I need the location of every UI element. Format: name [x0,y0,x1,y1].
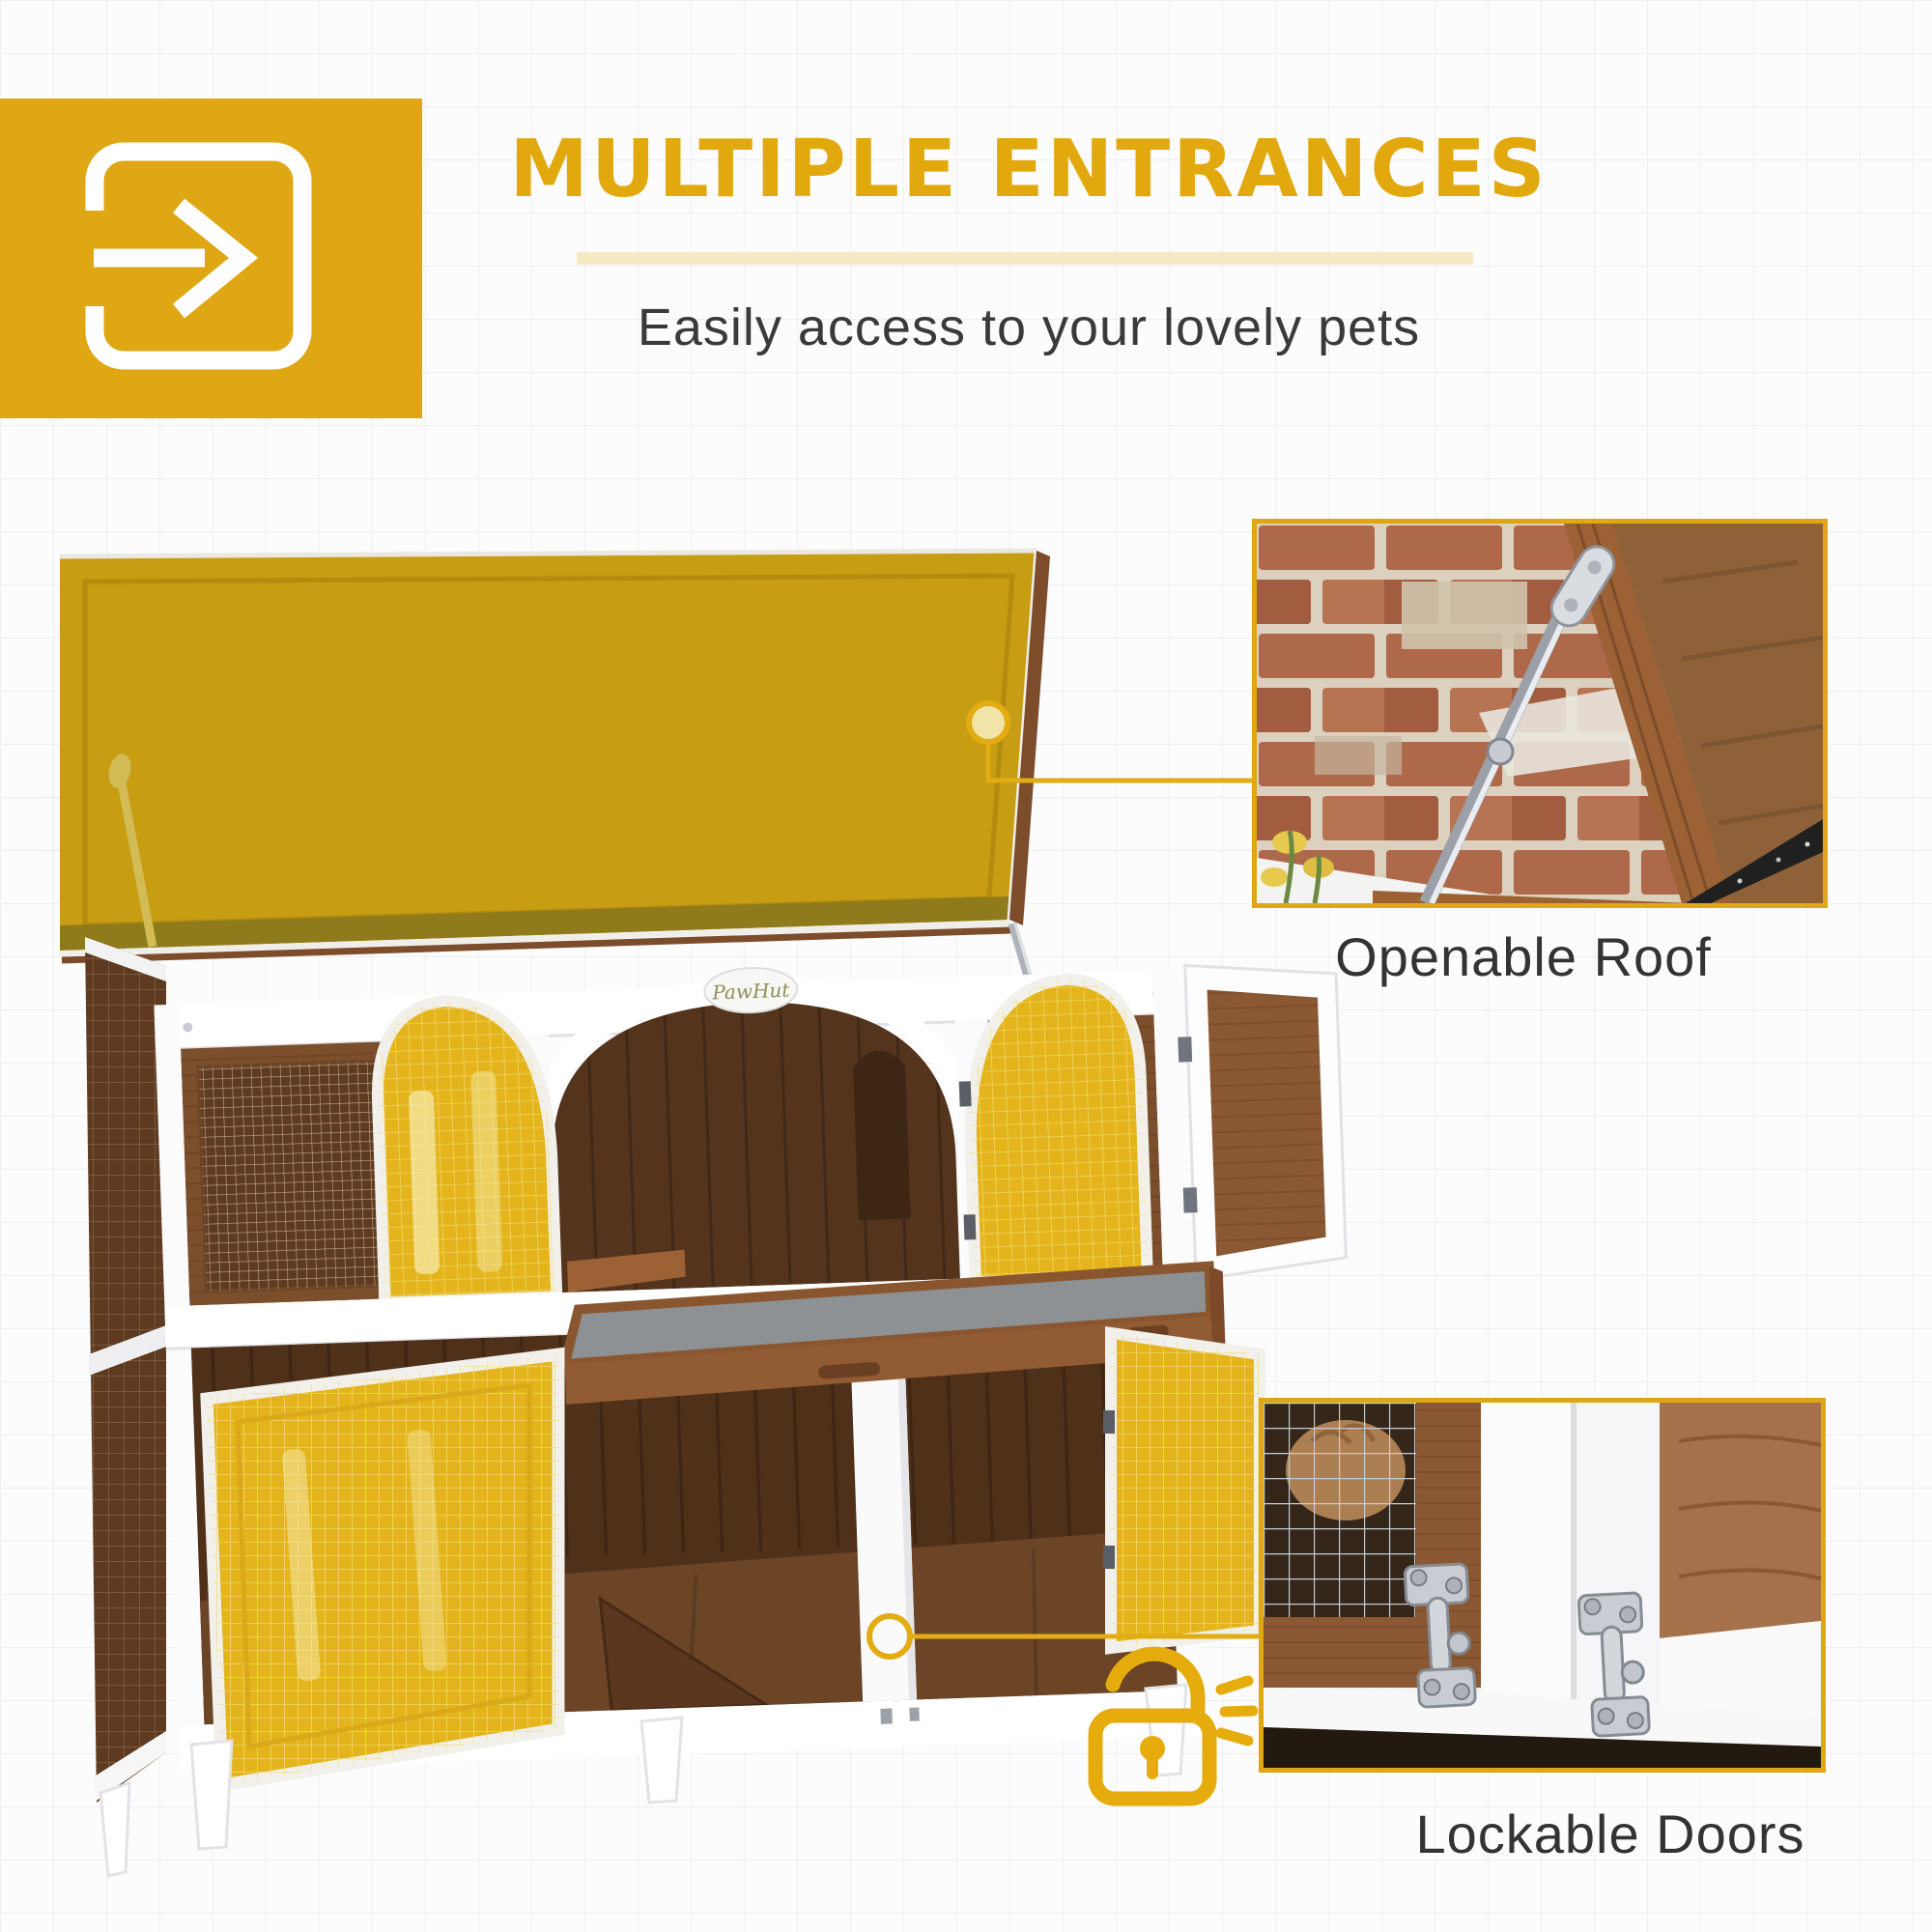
infographic-page: MULTIPLE ENTRANCES Easily access to your… [0,0,1932,1932]
svg-text:PawHut: PawHut [711,979,791,1005]
roof-circle-marker [969,703,1008,742]
wood-door-closeup [1660,1403,1821,1733]
feature-label-lockable-doors: Lockable Doors [1415,1803,1804,1865]
upper-center-opening [548,995,960,1293]
lower-right-mesh-door-highlighted [1103,1333,1260,1648]
openable-roof-photo [1252,519,1828,908]
lower-left-mesh-door-highlighted [207,1354,558,1785]
feature-label-openable-roof: Openable Roof [1335,925,1712,988]
open-roof-panel-highlighted [60,551,1050,960]
lockable-doors-photo [1259,1398,1826,1773]
click-emphasis-marks [1221,1681,1253,1741]
open-white-door [1176,960,1347,1281]
hutch-side-panel [85,937,166,1803]
